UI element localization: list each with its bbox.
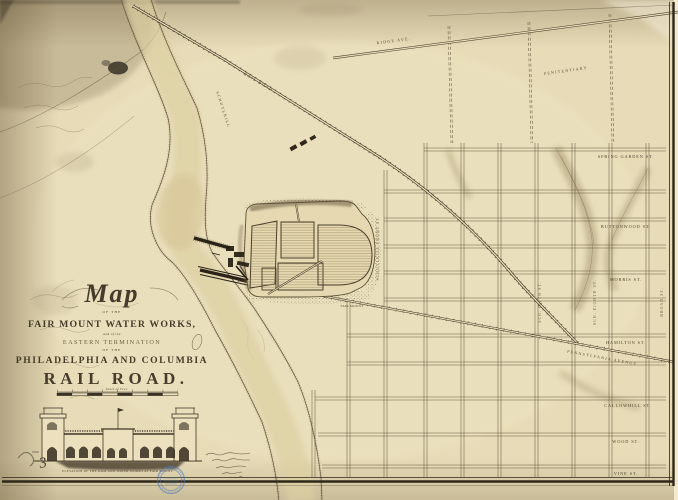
place-label-fair-mount: FAIR MOUNT [340, 304, 363, 308]
basin-southwest [262, 268, 276, 290]
title-railroad: RAIL ROAD. [43, 369, 188, 388]
street-label-morris: MORRIS ST. [610, 277, 642, 282]
title-company: PHILADELPHIA AND COLUMBIA [16, 355, 208, 366]
basin-round [318, 225, 372, 285]
street-label-spring-garden: SPRING GARDEN ST. [598, 154, 654, 159]
title-of-the-2: OF THE [103, 348, 122, 352]
elevation-drawing: ELEVATION OF THE DAM AND WATER WORKS AT … [34, 408, 202, 473]
street-label-wood: WOOD ST. [612, 439, 639, 444]
scale-caption: Scale of Feet. [106, 387, 128, 391]
title-and-of-the: and of the [103, 332, 121, 336]
title-of-the-1: OF THE [103, 310, 122, 314]
basin-center-south [278, 263, 323, 290]
title-word-map: Map [83, 279, 139, 308]
street-label-vine: VINE ST. [614, 471, 638, 476]
street-label-hamilton: HAMILTON ST. [606, 340, 646, 345]
street-label-sch-eighth: SCH. EIGHTH ST. [593, 279, 597, 325]
title-termination: EASTERN TERMINATION [63, 339, 161, 346]
scanned-map-page: SPRING GARDEN ST. BUTTONWOOD ST. MORRIS … [0, 0, 678, 500]
street-label-broad: BROAD ST. [660, 287, 664, 316]
street-label-sch-fifth: SCH. FIFTH ST. [538, 281, 542, 322]
street-label-schuylkill-front: SCHUYLKILL FRONT ST. [376, 215, 380, 280]
reservoir-complex [240, 198, 381, 304]
street-label-buttonwood: BUTTONWOOD ST. [601, 224, 651, 229]
elevation-caption: ELEVATION OF THE DAM AND WATER WORKS AT … [62, 469, 174, 473]
basin-center-north [281, 222, 314, 258]
title-waterworks: FAIR MOUNT WATER WORKS, [28, 319, 196, 330]
street-label-callowhill: CALLOWHILL ST. [604, 403, 651, 408]
